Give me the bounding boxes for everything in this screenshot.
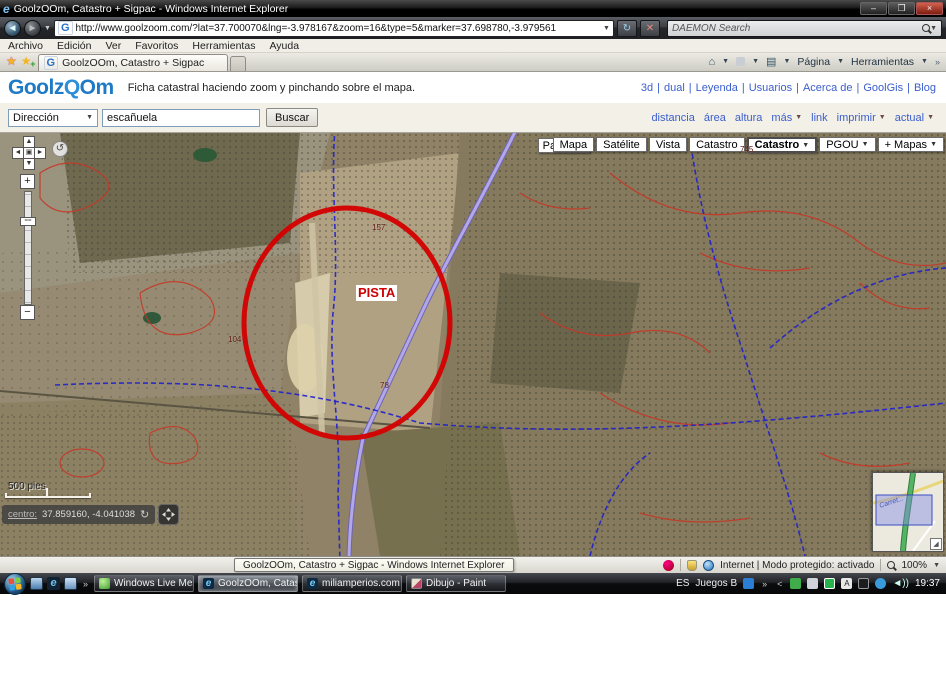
tab-bar: ★ ★ G GoolzOOm, Catastro + Sigpac ⌂▼ ▼ ▤…	[0, 53, 946, 72]
minimize-button[interactable]: –	[860, 2, 887, 15]
zoom-slider-track[interactable]	[24, 191, 32, 305]
tool-area[interactable]: área	[704, 112, 726, 124]
page-dropdown-icon[interactable]: ▼	[837, 58, 844, 65]
pan-down-icon[interactable]: ▼	[23, 158, 35, 170]
ie-icon: e	[3, 2, 10, 16]
menu-favoritos[interactable]: Favoritos	[135, 40, 178, 52]
browser-window: e GoolzOOm, Catastro + Sigpac - Windows …	[0, 0, 946, 594]
taskbar: e » Windows Live Mess... e GoolzOOm, Cat…	[0, 573, 946, 594]
overview-collapse-icon[interactable]: ◢	[930, 538, 942, 550]
tools-dropdown-icon[interactable]: ▼	[921, 58, 928, 65]
map-canvas[interactable]: ▲ ◄ ▣ ► ▼ ↺ + == − Parcelas Mapa Satélit…	[0, 133, 946, 556]
refresh-button[interactable]: ↻	[617, 20, 637, 37]
system-tray: ES Juegos B » < A ◄)) 19:37	[676, 578, 942, 589]
status-page-title: GoolzOOm, Catastro + Sigpac - Windows In…	[234, 558, 514, 572]
link-leyenda[interactable]: Leyenda	[696, 82, 738, 94]
title-bar[interactable]: e GoolzOOm, Catastro + Sigpac - Windows …	[0, 0, 946, 17]
map-tool-links: distancia área altura más▼ link imprimir…	[651, 112, 938, 124]
tool-distancia[interactable]: distancia	[651, 112, 694, 124]
url-text: http://www.goolzoom.com/?lat=37.700070&l…	[76, 23, 557, 34]
address-bar: ◄ ► ▼ G http://www.goolzoom.com/?lat=37.…	[0, 17, 946, 39]
favorites-icon[interactable]: ★	[6, 54, 17, 68]
mapa-button[interactable]: Mapa	[553, 137, 595, 152]
pista-annotation: PISTA	[356, 285, 397, 301]
security-shield-icon	[687, 560, 697, 571]
ie-icon: e	[307, 578, 318, 589]
link-goolgis[interactable]: GoolGis	[863, 82, 903, 94]
centro-link[interactable]: centro:	[8, 509, 37, 520]
site-links: 3d| dual| Leyenda| Usuarios| Acerca de| …	[641, 82, 938, 94]
scale-bar	[5, 493, 91, 498]
tray-icon-dark[interactable]	[858, 578, 869, 589]
tray-icon-green[interactable]	[790, 578, 801, 589]
network-icon[interactable]	[875, 578, 886, 589]
overview-map[interactable]: Carret... ◢	[872, 472, 944, 552]
link-3d[interactable]: 3d	[641, 82, 653, 94]
tool-imprimir[interactable]: imprimir	[837, 112, 876, 124]
menu-edicion[interactable]: Edición	[57, 40, 91, 52]
volume-icon[interactable]: ◄))	[892, 578, 909, 589]
search-options-dropdown-icon[interactable]: ▼	[930, 25, 937, 32]
tools-menu[interactable]: Herramientas	[851, 56, 914, 68]
link-acerca-de[interactable]: Acerca de	[803, 82, 853, 94]
task-windows-live[interactable]: Windows Live Mess...	[94, 575, 194, 592]
zoom-level-icon[interactable]	[887, 561, 895, 569]
url-field[interactable]: G http://www.goolzoom.com/?lat=37.700070…	[54, 20, 614, 37]
chevron-down-icon: ▼	[930, 141, 937, 148]
zoom-out-button[interactable]: −	[20, 305, 35, 320]
address-search-input[interactable]	[102, 109, 260, 127]
reset-view-icon[interactable]: ↺	[52, 141, 68, 157]
catastro-dropdown-button[interactable]: Catastro▼	[747, 137, 818, 153]
home-dropdown-icon[interactable]: ▼	[722, 58, 729, 65]
select-arrow-icon: ▼	[86, 114, 93, 121]
tab-title: GoolzOOm, Catastro + Sigpac	[62, 57, 204, 69]
feeds-icon[interactable]	[736, 57, 745, 66]
start-button[interactable]	[4, 573, 26, 595]
addon-icon[interactable]	[663, 560, 674, 571]
quicklaunch-ie-icon[interactable]: e	[47, 577, 60, 590]
refresh-coords-icon[interactable]: ↻	[140, 508, 149, 521]
tray-icon-user[interactable]	[807, 578, 818, 589]
search-box[interactable]: ▼	[667, 20, 942, 37]
menu-bar: Archivo Edición Ver Favoritos Herramient…	[0, 39, 946, 53]
home-icon[interactable]: ⌂	[709, 56, 716, 68]
site-header: GoolzQOm Ficha catastral haciendo zoom y…	[0, 72, 946, 103]
url-history-dropdown-icon[interactable]: ▼	[603, 25, 610, 32]
parcel-label: 157	[372, 223, 385, 232]
link-usuarios[interactable]: Usuarios	[749, 82, 792, 94]
maximize-button[interactable]: ❐	[888, 2, 915, 15]
tray-expand-icon[interactable]: <	[777, 579, 782, 589]
stop-button[interactable]: ✕	[640, 20, 660, 37]
recent-pages-dropdown-icon[interactable]: ▼	[44, 25, 51, 32]
parcel-label: 78	[380, 381, 389, 390]
zoom-slider-handle[interactable]: ==	[20, 217, 36, 226]
ie-icon: e	[203, 578, 214, 589]
tray-icon-a[interactable]: A	[841, 578, 852, 589]
messenger-icon	[99, 578, 110, 589]
link-dual[interactable]: dual	[664, 82, 685, 94]
task-paint[interactable]: Dibujo - Paint	[406, 575, 506, 592]
center-coordinates-bar: centro: 37.859160, -4.041038 ↻	[2, 505, 179, 524]
menu-herramientas[interactable]: Herramientas	[192, 40, 255, 52]
goolzoom-logo[interactable]: GoolzQOm	[8, 76, 114, 100]
center-coordinates: 37.859160, -4.041038	[42, 509, 135, 520]
taskbar-clock[interactable]: 19:37	[915, 578, 940, 589]
add-favorite-icon[interactable]: ★	[21, 54, 32, 68]
zoom-in-button[interactable]: +	[20, 174, 35, 189]
tray-chevron-icon[interactable]: »	[762, 579, 767, 589]
zoom-dropdown-icon[interactable]: ▼	[933, 562, 940, 569]
language-indicator[interactable]: ES	[676, 578, 689, 589]
search-category-select[interactable]: Dirección▼	[8, 109, 98, 127]
menu-archivo[interactable]: Archivo	[8, 40, 43, 52]
tool-link[interactable]: link	[811, 112, 828, 124]
overflow-chevron-icon[interactable]: »	[935, 57, 940, 67]
window-title: GoolzOOm, Catastro + Sigpac - Windows In…	[14, 3, 289, 15]
search-icon[interactable]	[922, 24, 930, 32]
forward-button[interactable]: ►	[24, 20, 41, 37]
search-row: Dirección▼ Buscar distancia área altura …	[0, 103, 946, 133]
satelite-button[interactable]: Satélite	[596, 137, 647, 152]
tool-mas[interactable]: más	[771, 112, 792, 124]
parcel-label: 104	[228, 335, 241, 344]
scale-label: 500 pies	[8, 481, 46, 492]
internet-zone-icon	[703, 560, 714, 571]
quicklaunch-app-icon[interactable]	[64, 577, 77, 590]
parcel-label: 745	[740, 145, 753, 154]
aerial-imagery	[0, 133, 946, 556]
vista-button[interactable]: Vista	[649, 137, 687, 152]
back-button[interactable]: ◄	[4, 20, 21, 37]
menu-ver[interactable]: Ver	[105, 40, 121, 52]
actual-dropdown-icon[interactable]: ▼	[927, 114, 934, 121]
site-favicon: G	[58, 21, 73, 35]
status-bar: GoolzOOm, Catastro + Sigpac - Windows In…	[0, 556, 946, 573]
catastro-button[interactable]: Catastro	[689, 137, 745, 152]
link-blog[interactable]: Blog	[914, 82, 936, 94]
chevron-down-icon: ▼	[802, 142, 809, 149]
mas-mapas-dropdown-button[interactable]: + Mapas▼	[878, 137, 944, 152]
map-pan-control[interactable]: ▲ ◄ ▣ ► ▼	[12, 136, 46, 170]
tray-games-label[interactable]: Juegos B	[695, 578, 737, 589]
zoom-level[interactable]: 100%	[901, 560, 927, 571]
show-desktop-icon[interactable]	[30, 577, 43, 590]
search-input[interactable]	[672, 23, 922, 34]
quicklaunch-chevron-icon[interactable]: »	[83, 579, 88, 589]
tool-altura[interactable]: altura	[735, 112, 763, 124]
zone-text: Internet | Modo protegido: activado	[720, 560, 874, 571]
task-miliamperios[interactable]: e miliamperios.com ::...	[302, 575, 402, 592]
chevron-down-icon: ▼	[862, 141, 869, 148]
mas-dropdown-icon[interactable]: ▼	[795, 114, 802, 121]
task-goolzoom[interactable]: e GoolzOOm, Catastr...	[198, 575, 298, 592]
move-map-icon[interactable]	[158, 504, 179, 525]
page-menu[interactable]: Página	[797, 56, 830, 68]
feeds-dropdown-icon[interactable]: ▼	[752, 58, 759, 65]
close-button[interactable]: ×	[916, 2, 943, 15]
pgou-dropdown-button[interactable]: PGOU▼	[819, 137, 875, 152]
menu-ayuda[interactable]: Ayuda	[269, 40, 299, 52]
scale-tick	[46, 488, 48, 496]
tool-actual[interactable]: actual	[895, 112, 924, 124]
print-icon[interactable]: ▤	[766, 55, 776, 68]
buscar-button[interactable]: Buscar	[266, 108, 318, 127]
new-tab-stub[interactable]	[230, 56, 246, 71]
tab-favicon: G	[44, 56, 59, 70]
pan-right-icon[interactable]: ►	[34, 147, 46, 159]
imprimir-dropdown-icon[interactable]: ▼	[879, 114, 886, 121]
paint-icon	[411, 578, 422, 589]
tab-active[interactable]: G GoolzOOm, Catastro + Sigpac	[38, 54, 228, 71]
print-dropdown-icon[interactable]: ▼	[783, 58, 790, 65]
site-tagline: Ficha catastral haciendo zoom y pinchand…	[128, 82, 415, 94]
battery-icon[interactable]	[824, 578, 835, 589]
tray-app-icon[interactable]	[743, 578, 754, 589]
